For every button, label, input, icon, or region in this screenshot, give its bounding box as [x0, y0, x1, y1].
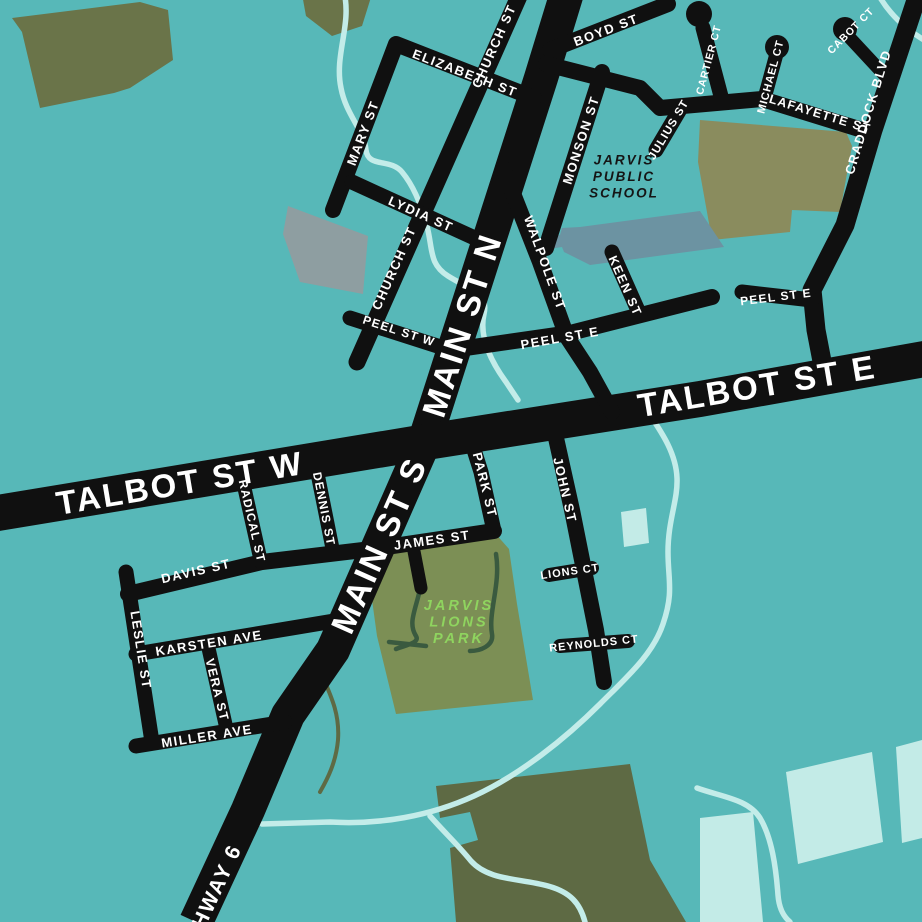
place-jarvis-lions-park-line-2: LIONS [429, 615, 488, 631]
place-jarvis-public-school-line-1: JARVIS [594, 153, 655, 168]
town-map-svg: BOYD STELIZABETH STCHURCH STCHURCH STMAR… [0, 0, 922, 922]
pond-small [621, 508, 649, 547]
road-park-driveway [413, 546, 421, 588]
place-jarvis-public-school-line-2: PUBLIC [593, 169, 655, 184]
jarvis-map-poster: BOYD STELIZABETH STCHURCH STCHURCH STMAR… [0, 0, 922, 922]
cartier-ct-loop [686, 1, 712, 27]
place-jarvis-lions-park-line-1: JARVIS [424, 598, 494, 614]
place-jarvis-lions-park-line-3: PARK [433, 631, 485, 647]
pond-southeast-3 [700, 812, 763, 922]
place-jarvis-public-school-line-3: SCHOOL [589, 186, 659, 201]
